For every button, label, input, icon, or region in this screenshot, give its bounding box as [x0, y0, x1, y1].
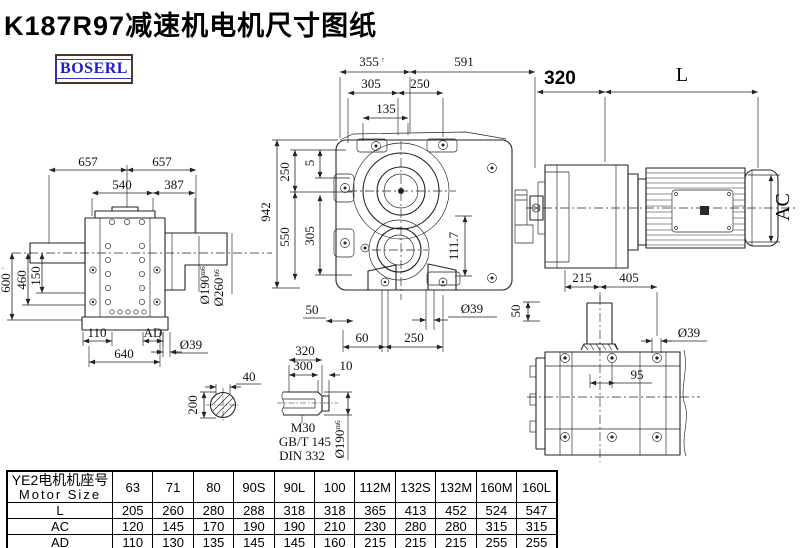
- dim-150: 150: [28, 266, 43, 286]
- dim-d190-tol-left: m6: [198, 266, 207, 276]
- dim-d190-tol-shaft: m6: [333, 420, 342, 430]
- cell-AD-112M: 215: [355, 535, 395, 548]
- left-view: 657 657 540 387 600 ′ 460 150 110 AD 640…: [0, 154, 272, 367]
- motor-col-100: 100: [315, 471, 355, 503]
- cell-AC-71: 145: [153, 519, 193, 535]
- cell-L-132S: 413: [395, 503, 435, 519]
- dim-355: 355: [359, 54, 379, 69]
- cell-AC-112M: 230: [355, 519, 395, 535]
- motor-col-90S: 90S: [234, 471, 274, 503]
- dim-460: 460: [14, 270, 29, 290]
- row-label-AD: AD: [7, 535, 113, 548]
- dim-d260: Ø260: [211, 278, 226, 307]
- dim-d190-left: Ø190: [197, 276, 212, 305]
- dim-550: 550: [277, 227, 292, 247]
- dim-200: 200: [185, 395, 200, 415]
- motor-size-header: YE2电机机座号Motor Size: [7, 471, 113, 503]
- motor-col-132S: 132S: [395, 471, 435, 503]
- dim-135: 135: [376, 101, 396, 116]
- side-view: 320 L AC 215 405: [526, 64, 796, 336]
- dim-250-top: 250: [410, 76, 430, 91]
- cell-L-160M: 524: [476, 503, 516, 519]
- dim-10: 10: [340, 358, 353, 373]
- cell-AC-160L: 315: [517, 519, 557, 535]
- dim-591: 591: [454, 54, 474, 69]
- cell-L-100: 318: [315, 503, 355, 519]
- dim-AD: AD: [144, 325, 163, 340]
- dim-250-bottom: 250: [404, 330, 424, 345]
- cell-AD-90S: 145: [234, 535, 274, 548]
- row-label-AC: AC: [7, 519, 113, 535]
- dim-50-bottom: 50: [306, 302, 319, 317]
- dim-50-right: 50: [508, 305, 523, 318]
- dim-d39-flange: Ø39: [678, 325, 700, 340]
- cell-AD-100: 160: [315, 535, 355, 548]
- motor-col-63: 63: [113, 471, 153, 503]
- cell-AC-90S: 190: [234, 519, 274, 535]
- cell-L-160L: 547: [517, 503, 557, 519]
- dim-942: 942: [258, 202, 273, 222]
- cell-AC-132M: 280: [436, 519, 476, 535]
- cell-L-63: 205: [113, 503, 153, 519]
- flange-view: Ø39 95: [527, 296, 707, 462]
- dim-95: 95: [631, 367, 644, 382]
- motor-col-90L: 90L: [274, 471, 314, 503]
- dim-110: 110: [87, 325, 106, 340]
- row-label-L: L: [7, 503, 113, 519]
- dim-320-shaft: 320: [295, 343, 315, 358]
- dim-AC: AC: [772, 193, 794, 221]
- cell-AD-80: 135: [193, 535, 233, 548]
- drawing-sheet: K187R97减速机电机尺寸图纸 BOSERL: [0, 0, 800, 548]
- bore-section-detail: 200 40: [185, 369, 261, 422]
- technical-drawing: 657 657 540 387 600 ′ 460 150 110 AD 640…: [0, 0, 800, 548]
- dim-320-side: 320: [544, 68, 576, 89]
- cell-AD-71: 130: [153, 535, 193, 548]
- dim-657-right: 657: [152, 154, 172, 169]
- dim-657-left: 657: [78, 154, 98, 169]
- cell-AD-160M: 255: [476, 535, 516, 548]
- dim-640: 640: [114, 346, 134, 361]
- motor-col-112M: 112M: [355, 471, 395, 503]
- dim-600: 600: [0, 273, 13, 293]
- cell-AD-132M: 215: [436, 535, 476, 548]
- cell-AD-132S: 215: [395, 535, 435, 548]
- motor-size-table: YE2电机机座号Motor Size63718090S90L100112M132…: [6, 470, 558, 548]
- dim-d260-tol: h6: [212, 269, 221, 277]
- cell-AC-100: 210: [315, 519, 355, 535]
- shaft-end-detail: 320 300 10 M30 GB/T 145 DIN 332 Ø190 m6: [277, 343, 353, 463]
- label-m30: M30: [291, 420, 316, 435]
- motor-col-71: 71: [153, 471, 193, 503]
- dim-540: 540: [112, 177, 132, 192]
- dim-215: 215: [572, 270, 592, 285]
- dim-600-mark: ′: [0, 267, 9, 269]
- dim-300: 300: [293, 358, 313, 373]
- dim-60: 60: [356, 330, 369, 345]
- cell-AC-90L: 190: [274, 519, 314, 535]
- cell-AC-80: 170: [193, 519, 233, 535]
- dim-d39-left: Ø39: [180, 337, 202, 352]
- cell-AD-90L: 145: [274, 535, 314, 548]
- dim-d190-shaft: Ø190: [332, 430, 347, 459]
- motor-col-80: 80: [193, 471, 233, 503]
- cell-AD-160L: 255: [517, 535, 557, 548]
- label-gbt145: GB/T 145: [279, 434, 331, 449]
- front-view: 355 ↑ 591 305 250 135 942 250 5 550 305 …: [258, 54, 540, 352]
- dim-355-mark: ↑: [381, 55, 385, 64]
- dim-387: 387: [164, 177, 184, 192]
- dim-111-7: 111.7: [446, 231, 461, 260]
- cell-L-90S: 288: [234, 503, 274, 519]
- cell-L-112M: 365: [355, 503, 395, 519]
- dim-L: L: [676, 64, 688, 86]
- cell-L-90L: 318: [274, 503, 314, 519]
- motor-col-160M: 160M: [476, 471, 516, 503]
- dim-250-left: 250: [277, 162, 292, 182]
- dim-40: 40: [243, 369, 256, 384]
- motor-col-132M: 132M: [436, 471, 476, 503]
- dim-5: 5: [302, 160, 317, 167]
- dim-405: 405: [619, 270, 639, 285]
- dim-305-left: 305: [302, 226, 317, 246]
- cell-AD-63: 110: [113, 535, 153, 548]
- motor-size-header-cn: YE2电机机座号: [8, 473, 112, 488]
- cell-AC-132S: 280: [395, 519, 435, 535]
- label-din332: DIN 332: [279, 448, 325, 463]
- motor-size-header-en: Motor Size: [8, 488, 112, 502]
- dim-d39-front: Ø39: [461, 301, 483, 316]
- cell-L-132M: 452: [436, 503, 476, 519]
- motor-col-160L: 160L: [517, 471, 557, 503]
- cell-AC-160M: 315: [476, 519, 516, 535]
- cell-L-71: 260: [153, 503, 193, 519]
- dim-305-top: 305: [361, 76, 381, 91]
- cell-AC-63: 120: [113, 519, 153, 535]
- cell-L-80: 280: [193, 503, 233, 519]
